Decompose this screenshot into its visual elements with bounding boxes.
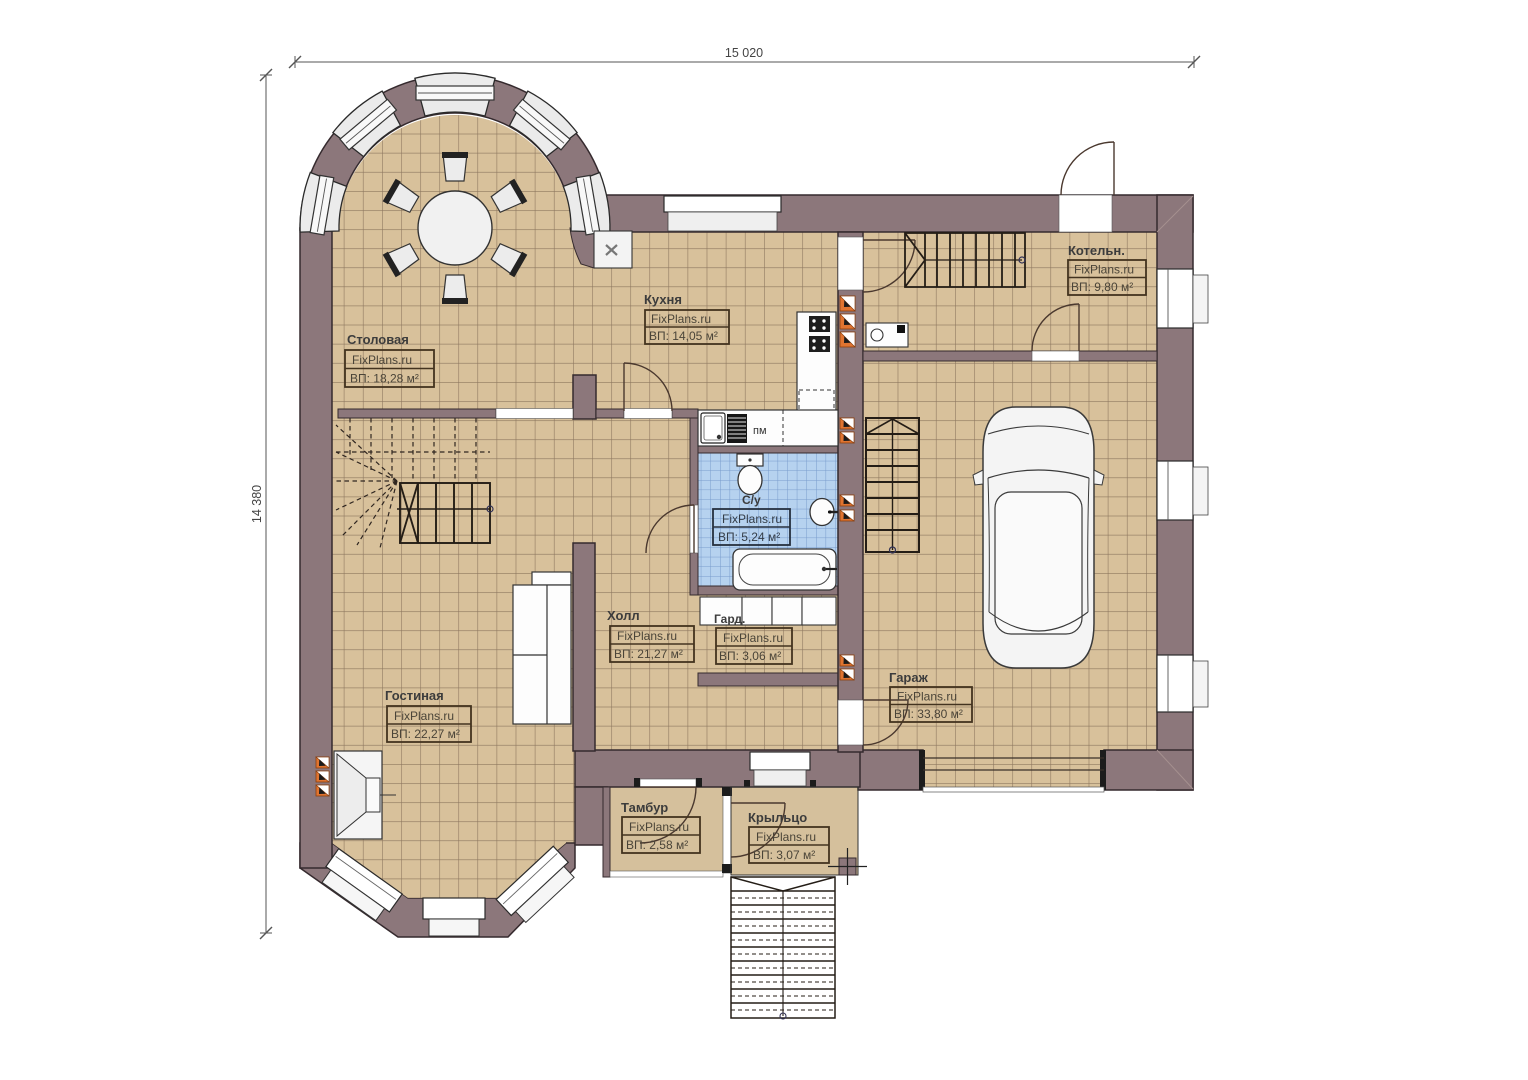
svg-text:ВП: 14,05 м²: ВП: 14,05 м² (649, 329, 718, 343)
svg-text:FixPlans.ru: FixPlans.ru (756, 830, 816, 844)
svg-text:15 020: 15 020 (725, 46, 763, 60)
svg-text:FixPlans.ru: FixPlans.ru (723, 631, 783, 645)
svg-text:ВП: 2,58 м²: ВП: 2,58 м² (626, 838, 688, 852)
svg-text:Крыльцо: Крыльцо (748, 810, 807, 825)
svg-text:ВП: 3,07 м²: ВП: 3,07 м² (753, 848, 815, 862)
svg-text:ВП: 33,80 м²: ВП: 33,80 м² (894, 707, 963, 721)
svg-text:ВП: 22,27 м²: ВП: 22,27 м² (391, 727, 460, 741)
svg-text:Тамбур: Тамбур (621, 800, 668, 815)
svg-text:ВП: 21,27 м²: ВП: 21,27 м² (614, 647, 683, 661)
svg-text:Кухня: Кухня (644, 292, 682, 307)
svg-text:FixPlans.ru: FixPlans.ru (897, 690, 957, 704)
svg-text:FixPlans.ru: FixPlans.ru (1074, 263, 1134, 277)
svg-text:FixPlans.ru: FixPlans.ru (722, 512, 782, 526)
svg-text:ВП: 3,06 м²: ВП: 3,06 м² (719, 649, 781, 663)
svg-text:Гостиная: Гостиная (385, 688, 444, 703)
svg-text:Холл: Холл (607, 608, 640, 623)
svg-text:14 380: 14 380 (250, 485, 264, 523)
svg-text:Котельн.: Котельн. (1068, 243, 1125, 258)
svg-text:Гараж: Гараж (889, 670, 929, 685)
svg-text:FixPlans.ru: FixPlans.ru (629, 820, 689, 834)
svg-text:ВП: 9,80 м²: ВП: 9,80 м² (1071, 280, 1133, 294)
svg-text:ВП: 5,24 м²: ВП: 5,24 м² (718, 530, 780, 544)
svg-text:С/у: С/у (742, 493, 761, 507)
svg-text:пм: пм (753, 425, 767, 437)
svg-text:FixPlans.ru: FixPlans.ru (352, 353, 412, 367)
svg-text:Гард.: Гард. (714, 612, 745, 626)
svg-text:ВП: 18,28 м²: ВП: 18,28 м² (350, 372, 419, 386)
svg-text:FixPlans.ru: FixPlans.ru (651, 312, 711, 326)
svg-text:Столовая: Столовая (347, 332, 409, 347)
svg-text:FixPlans.ru: FixPlans.ru (394, 709, 454, 723)
svg-text:FixPlans.ru: FixPlans.ru (617, 629, 677, 643)
